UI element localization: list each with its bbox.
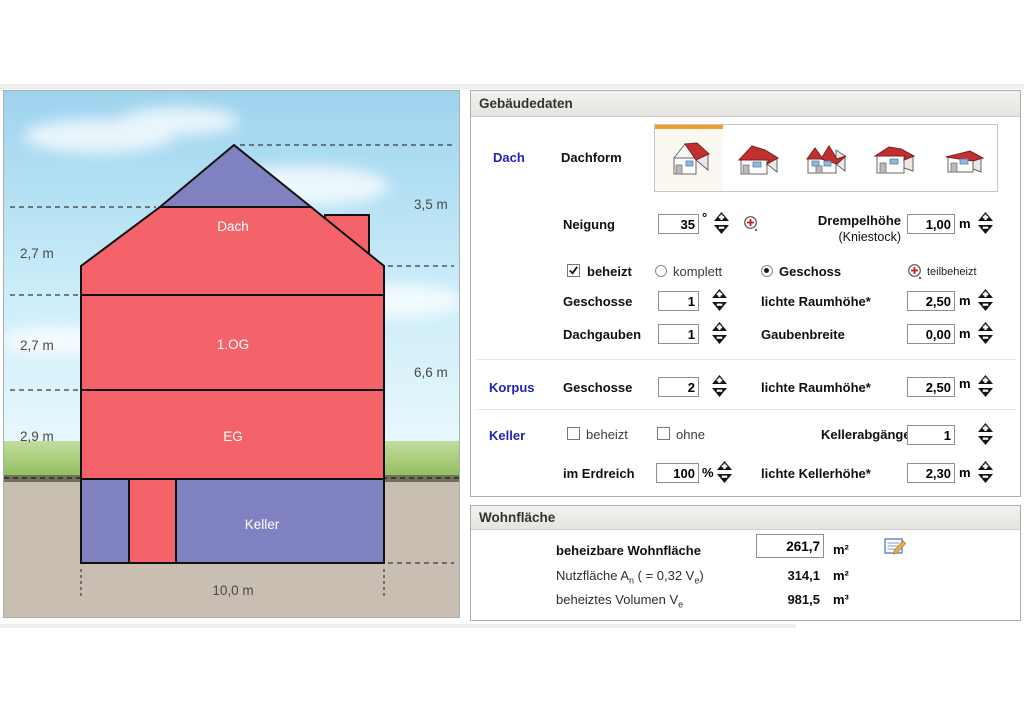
- beheizbare-wohnflaeche-input[interactable]: [756, 534, 824, 558]
- neigung-detail-button[interactable]: [743, 215, 759, 232]
- dachform-selector: [654, 124, 998, 192]
- building-diagram-panel: Dach 1.OG EG Keller 2,7 m 2,7 m 2,9 m 3,…: [3, 90, 460, 618]
- neigung-input[interactable]: [658, 214, 699, 234]
- section-divider: [477, 359, 1016, 360]
- korpus-raumhoehe-unit: m: [959, 376, 971, 391]
- dachgauben-input[interactable]: [658, 324, 699, 344]
- dach-raumhoehe-spinner[interactable]: [977, 288, 994, 313]
- neigung-label: Neigung: [563, 217, 615, 232]
- measure-dach-height: 2,7 m: [20, 246, 54, 261]
- edit-wohnflaeche-icon[interactable]: [884, 537, 907, 556]
- dach-raumhoehe-label: lichte Raumhöhe*: [761, 294, 871, 309]
- beheizbare-wohnflaeche-unit: m²: [833, 542, 849, 557]
- section-divider: [477, 409, 1016, 410]
- keller-beheizt-label: beheizt: [586, 427, 628, 442]
- erdreich-unit: %: [702, 465, 714, 480]
- korpus-raumhoehe-spinner[interactable]: [977, 374, 994, 399]
- flat-roof-house-icon: [940, 138, 986, 178]
- dach-raumhoehe-unit: m: [959, 293, 971, 308]
- geschoss-label: Geschoss: [779, 264, 841, 279]
- pavilion-roof-house-icon: [871, 138, 917, 178]
- nutzflaeche-label: Nutzfläche An ( = 0,32 Ve): [556, 568, 704, 586]
- neigung-spinner[interactable]: [713, 211, 730, 236]
- komplett-label: komplett: [673, 264, 722, 279]
- nutzflaeche-label-part: Nutzfläche A: [556, 568, 629, 583]
- nutzflaeche-label-part: ( = 0,32 V: [634, 568, 694, 583]
- kniestock-label: (Kniestock): [791, 230, 901, 244]
- section-label-dach: Dach: [493, 150, 525, 165]
- gebaeudedaten-panel: Gebäudedaten Dach Dachform: [470, 90, 1021, 497]
- beheizbare-wohnflaeche-label: beheizbare Wohnfläche: [556, 543, 701, 558]
- measure-house-width: 10,0 m: [212, 583, 253, 598]
- dachgauben-label: Dachgauben: [563, 327, 641, 342]
- dach-beheizt-checkbox[interactable]: [567, 264, 580, 277]
- korpus-raumhoehe-label: lichte Raumhöhe*: [761, 380, 871, 395]
- volumen-sub-e: e: [678, 600, 683, 610]
- nutzflaeche-value: 314,1: [756, 568, 820, 583]
- gaubenbreite-input[interactable]: [907, 324, 955, 344]
- gebaeudedaten-header: Gebäudedaten: [471, 91, 1020, 117]
- kellerabgaenge-input[interactable]: [907, 425, 955, 445]
- korpus-geschosse-label: Geschosse: [563, 380, 632, 395]
- measure-wall-height: 6,6 m: [414, 365, 448, 380]
- gaubenbreite-spinner[interactable]: [977, 321, 994, 346]
- geschoss-radio[interactable]: [761, 265, 773, 277]
- volumen-label: beheiztes Volumen Ve: [556, 592, 683, 610]
- dach-label: Dach: [217, 219, 249, 234]
- kellerhoehe-unit: m: [959, 465, 971, 480]
- volumen-label-part: beheiztes Volumen V: [556, 592, 678, 607]
- dachform-tab-hip[interactable]: [723, 125, 791, 191]
- dach-raumhoehe-input[interactable]: [907, 291, 955, 311]
- dachform-tab-cross-gable[interactable]: [792, 125, 860, 191]
- hip-roof-house-icon: [735, 138, 781, 178]
- gaubenbreite-label: Gaubenbreite: [761, 327, 845, 342]
- kellerhoehe-input[interactable]: [907, 463, 955, 483]
- dachgauben-spinner[interactable]: [711, 321, 728, 346]
- drempelhoehe-label: Drempelhöhe: [791, 213, 901, 228]
- section-label-keller: Keller: [489, 428, 525, 443]
- drempelhoehe-spinner[interactable]: [977, 211, 994, 236]
- dach-geschosse-input[interactable]: [658, 291, 699, 311]
- section-label-korpus: Korpus: [489, 380, 535, 395]
- keller-stair-area: [129, 479, 176, 563]
- kellerhoehe-spinner[interactable]: [977, 460, 994, 485]
- volumen-value: 981,5: [756, 592, 820, 607]
- erdreich-label: im Erdreich: [563, 466, 635, 481]
- teilbeheizt-detail-button[interactable]: [907, 263, 923, 280]
- dach-beheizt-label: beheizt: [587, 264, 632, 279]
- og-label: 1.OG: [217, 337, 249, 352]
- building-cross-section: Dach 1.OG EG Keller 2,7 m 2,7 m 2,9 m 3,…: [4, 91, 459, 617]
- kellerabgaenge-spinner[interactable]: [977, 422, 994, 447]
- kellerhoehe-label: lichte Kellerhöhe*: [761, 466, 871, 481]
- gable-roof-house-icon: [666, 138, 712, 178]
- nutzflaeche-label-part: ): [699, 568, 703, 583]
- korpus-raumhoehe-input[interactable]: [907, 377, 955, 397]
- wohnflaeche-header: Wohnfläche: [471, 506, 1020, 530]
- wohnflaeche-panel: Wohnfläche beheizbare Wohnfläche m² Nutz…: [470, 505, 1021, 621]
- dach-geschosse-spinner[interactable]: [711, 288, 728, 313]
- teilbeheizt-label: teilbeheizt: [927, 266, 977, 278]
- cross-gable-house-icon: [803, 138, 849, 178]
- volumen-unit: m³: [833, 592, 849, 607]
- nutzflaeche-unit: m²: [833, 568, 849, 583]
- dachform-tab-pavilion[interactable]: [860, 125, 928, 191]
- checkmark-icon: [568, 265, 579, 276]
- erdreich-spinner[interactable]: [716, 460, 733, 485]
- drempelhoehe-unit: m: [959, 216, 971, 231]
- korpus-geschosse-spinner[interactable]: [711, 374, 728, 399]
- dach-geschosse-label: Geschosse: [563, 294, 632, 309]
- kellerabgaenge-label: Kellerabgänge: [821, 427, 911, 442]
- keller-unheated-area: [81, 479, 384, 563]
- drempelhoehe-input[interactable]: [907, 214, 955, 234]
- measure-roof-height: 3,5 m: [414, 197, 448, 212]
- neigung-unit: °: [702, 210, 707, 225]
- measure-og-height: 2,7 m: [20, 338, 54, 353]
- bottom-divider: [0, 624, 796, 628]
- keller-beheizt-checkbox[interactable]: [567, 427, 580, 440]
- komplett-radio[interactable]: [655, 265, 667, 277]
- keller-label: Keller: [245, 517, 280, 532]
- erdreich-input[interactable]: [656, 463, 699, 483]
- keller-ohne-checkbox[interactable]: [657, 427, 670, 440]
- dachform-label: Dachform: [561, 150, 622, 165]
- korpus-geschosse-input[interactable]: [658, 377, 699, 397]
- keller-ohne-label: ohne: [676, 427, 705, 442]
- top-divider: [0, 84, 1024, 89]
- eg-label: EG: [223, 429, 243, 444]
- gaubenbreite-unit: m: [959, 326, 971, 341]
- dachform-tab-flat[interactable]: [929, 125, 997, 191]
- measure-eg-height: 2,9 m: [20, 429, 54, 444]
- dachform-tab-gable[interactable]: [655, 125, 723, 191]
